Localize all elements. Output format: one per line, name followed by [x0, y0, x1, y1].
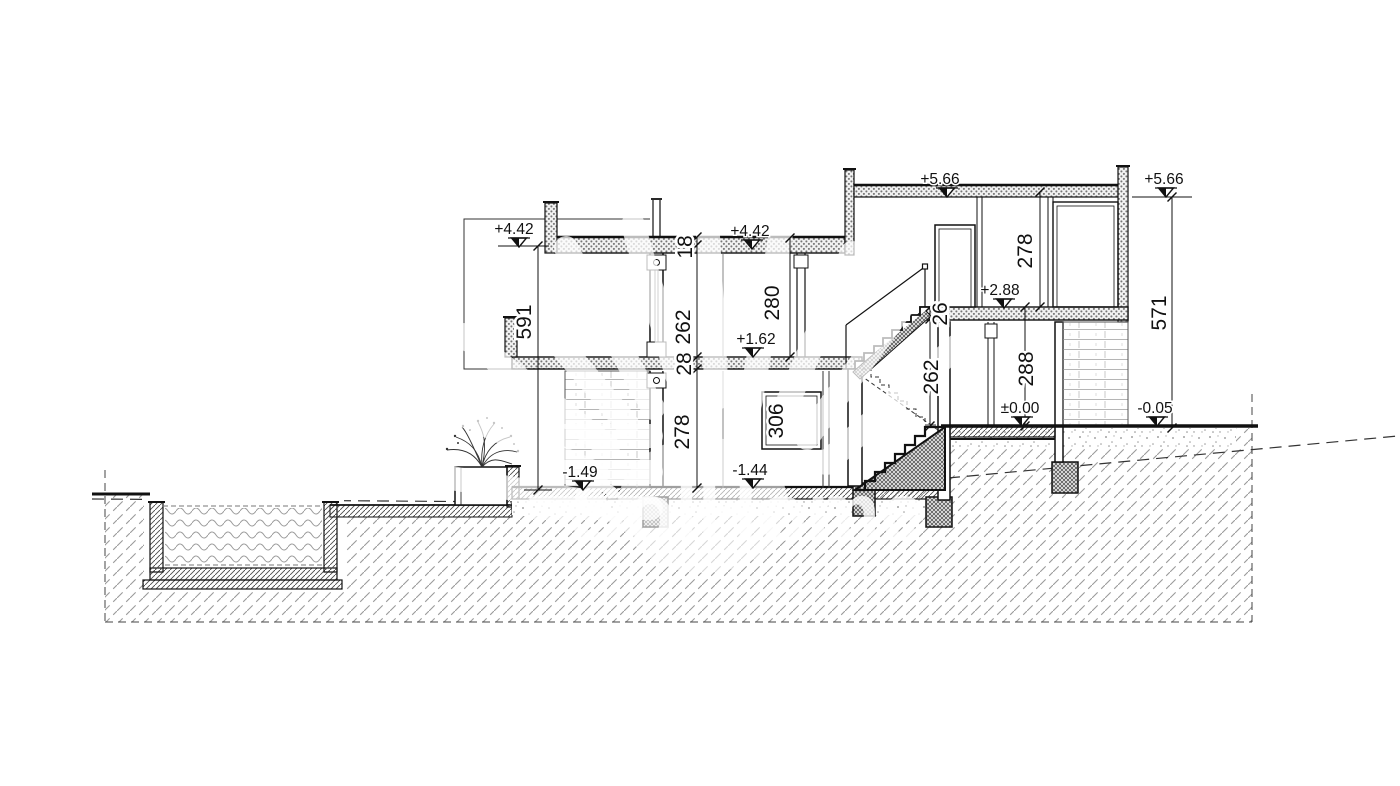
level-label-m149: -1.49	[562, 464, 597, 481]
roof-slab-p566	[854, 185, 1118, 197]
level-label-p566-mid: +5.66	[920, 171, 959, 188]
dim-label-288: 288	[1015, 351, 1038, 386]
level-marker-p566-right: +5.66	[1144, 171, 1183, 197]
pool-wall-left	[150, 502, 163, 572]
dim-label-18: 18	[674, 235, 697, 258]
level-label-p442-mid: +4.42	[730, 223, 769, 240]
dim-label-278-mid: 278	[671, 414, 694, 449]
floor-slab-zero	[950, 427, 1055, 437]
level-label-zero: ±0.00	[1001, 400, 1040, 417]
right-building-right-wall	[1118, 167, 1128, 322]
level-label-p442-left: +4.42	[494, 221, 533, 238]
level-label-p566-right: +5.66	[1144, 171, 1183, 188]
pool-base-plate	[143, 580, 342, 589]
level-marker-p288: +2.88	[980, 282, 1019, 308]
footing-4	[1052, 462, 1078, 493]
door-section	[935, 225, 975, 307]
lower-room-window	[985, 322, 997, 426]
lower-room-right-wall	[1055, 322, 1063, 462]
level-label-p288: +2.88	[980, 282, 1019, 299]
section-canvas: SolHome 591 18 262 28 278 280 26 262 288…	[0, 0, 1400, 786]
walkway-slab	[330, 505, 512, 517]
dim-label-571: 571	[1148, 295, 1171, 330]
dim-label-262-mid: 262	[672, 309, 695, 344]
stone-veneer-right	[1063, 322, 1128, 426]
level-marker-p442-left: +4.42	[494, 221, 533, 247]
level-label-m144: -1.44	[732, 462, 768, 479]
level-marker-zero: ±0.00	[1001, 400, 1040, 426]
dim-label-28: 28	[673, 352, 696, 375]
glazed-unit	[1053, 202, 1118, 307]
dim-label-26: 26	[929, 302, 952, 325]
dim-label-262-stair: 262	[920, 359, 943, 394]
architectural-section-drawing: SolHome 591 18 262 28 278 280 26 262 288…	[0, 0, 1400, 786]
pool-water	[165, 508, 322, 566]
level-marker-m005: -0.05	[1137, 400, 1172, 426]
dim-label-306: 306	[765, 403, 788, 438]
dim-label-591: 591	[513, 304, 536, 339]
swimming-pool	[143, 497, 344, 592]
pool-bottom-slab	[150, 568, 337, 580]
roof-vent	[651, 199, 662, 237]
level-label-m005: -0.05	[1137, 400, 1172, 417]
level-label-p162: +1.62	[736, 331, 775, 348]
dim-label-278-right: 278	[1014, 233, 1037, 268]
footing-3	[926, 497, 952, 527]
dim-label-280: 280	[761, 285, 784, 320]
